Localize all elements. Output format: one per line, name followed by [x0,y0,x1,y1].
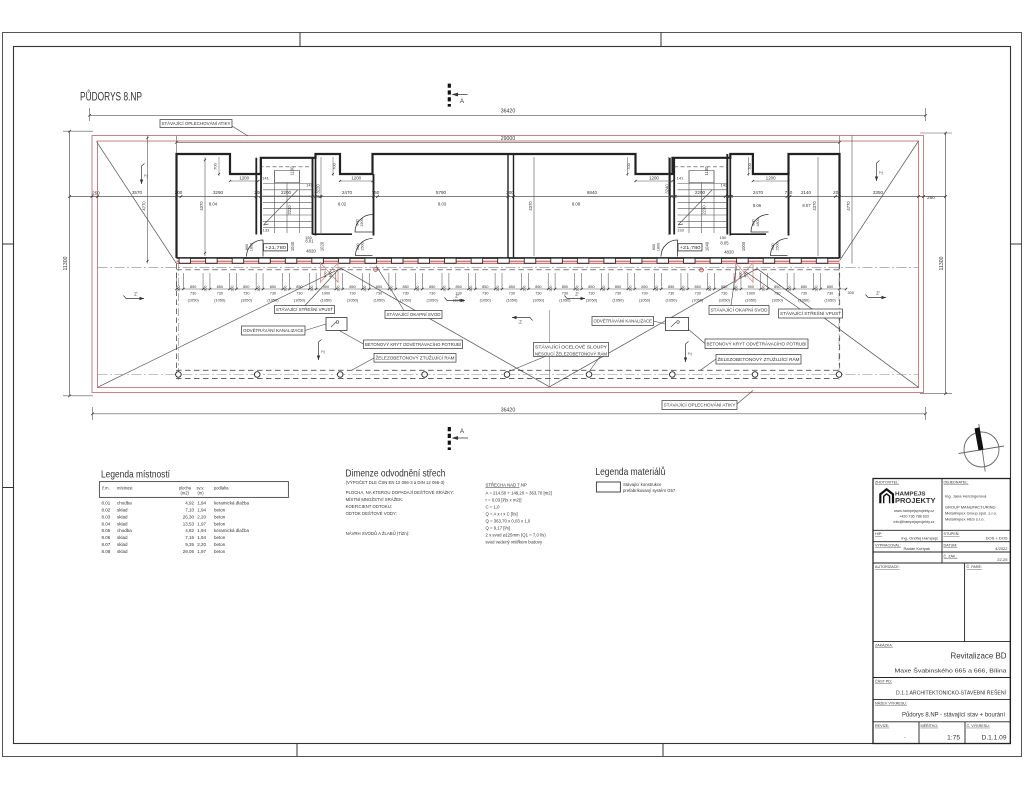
svg-text:Radan Kurtyak: Radan Kurtyak [904,546,930,551]
svg-text:850: 850 [349,285,355,289]
svg-text:700: 700 [747,162,752,169]
svg-text:4820: 4820 [724,250,734,255]
svg-text:300: 300 [257,286,261,292]
svg-text:1040: 1040 [290,241,295,251]
svg-text:8.06: 8.06 [753,203,762,208]
svg-text:8.05: 8.05 [102,528,111,533]
svg-text:(1050): (1050) [427,297,439,302]
svg-text:beton: beton [214,549,226,554]
svg-text:11300: 11300 [939,256,945,270]
svg-text:ŽELEZOBETONOVÝ ZTUŽUJÍCÍ RÁM: ŽELEZOBETONOVÝ ZTUŽUJÍCÍ RÁM [376,356,456,361]
svg-text:7,16: 7,16 [185,535,194,540]
svg-text:(1050): (1050) [373,297,385,302]
svg-text:300: 300 [602,286,606,292]
svg-text:Q = 363,70 x 0,03 x 1,0: Q = 363,70 x 0,03 x 1,0 [486,518,531,523]
svg-text:(1050): (1050) [320,297,332,302]
svg-text:300: 300 [788,286,792,292]
svg-text:www.hampejsprojekty.cz: www.hampejsprojekty.cz [894,509,934,513]
svg-text:730: 730 [668,291,674,295]
svg-text:GROUP MANUFACTURING: GROUP MANUFACTURING [945,505,996,510]
svg-text:141: 141 [677,176,684,181]
svg-text:místnost: místnost [117,486,133,491]
svg-text:(1050): (1050) [559,297,571,302]
svg-text:D.1.1 ARCHITEKTONICKO-STAVEBNÍ: D.1.1 ARCHITEKTONICKO-STAVEBNÍ ŘEŠENÍ [896,689,1006,697]
svg-text:Q = 9,17 [l/s]: Q = 9,17 [l/s] [486,525,510,530]
svg-text:svod vedený vnitřkem budovy: svod vedený vnitřkem budovy [486,539,543,544]
svg-text:1100: 1100 [290,166,295,176]
svg-text:200: 200 [175,190,183,195]
svg-text:700: 700 [332,162,337,169]
svg-text:1200: 1200 [766,175,776,180]
svg-text:730: 730 [429,291,435,295]
svg-text:6840: 6840 [587,190,598,195]
svg-text:3240: 3240 [665,184,670,194]
svg-text:ODTOK DEŠŤOVÉ VODY:: ODTOK DEŠŤOVÉ VODY: [346,511,397,516]
svg-text:Půdorys 8.NP - stávající stav: Půdorys 8.NP - stávající stav + bourání [902,711,1005,719]
svg-text:1900: 1900 [360,218,364,226]
svg-text:200: 200 [506,190,514,195]
svg-text:850: 850 [721,285,727,289]
svg-text:750: 750 [785,190,793,195]
svg-text:Č. PARÉ:: Č. PARÉ: [967,564,983,569]
svg-text:800: 800 [356,243,360,249]
svg-text:Q = A x r x C [l/s]: Q = A x r x C [l/s] [486,511,518,516]
svg-text:200: 200 [254,190,262,195]
svg-text:2140: 2140 [801,190,812,195]
svg-text:1,97: 1,97 [197,549,206,554]
svg-text:730: 730 [402,291,408,295]
svg-text:beton: beton [214,514,226,519]
svg-text:(1050): (1050) [267,297,279,302]
svg-text:300: 300 [549,286,553,292]
svg-text:STŘECHA NAD 7.NP: STŘECHA NAD 7.NP [486,482,527,487]
svg-text:(m): (m) [198,490,205,495]
svg-text:750: 750 [372,190,380,195]
svg-text:Z': Z' [134,292,138,297]
svg-text:730: 730 [270,291,276,295]
svg-text:Z': Z' [455,294,459,299]
svg-text:PŮDORYS 8.NP: PŮDORYS 8.NP [80,89,142,104]
svg-text:(1050): (1050) [506,297,518,302]
svg-text:850: 850 [270,285,276,289]
svg-text:sklad: sklad [117,549,128,554]
svg-text:300: 300 [848,290,855,295]
svg-text:KOEFICIENT ODTOKU:: KOEFICIENT ODTOKU: [346,504,392,509]
svg-text:BETONOVÝ KRYT ODVĚTRÁVACÍHO PO: BETONOVÝ KRYT ODVĚTRÁVACÍHO POTRUBÍ [365,342,462,347]
svg-text:Metalimpex Group spol. s.r.o.: Metalimpex Group spol. s.r.o. [945,511,997,516]
svg-text:1500: 1500 [361,242,365,250]
svg-text:2470: 2470 [342,190,353,195]
svg-text:1900: 1900 [747,291,755,295]
svg-text:Dimenze odvodnění střech: Dimenze odvodnění střech [345,468,445,480]
svg-text:STÁVAJÍCÍ OPLECHOVÁNÍ ATIKY: STÁVAJÍCÍ OPLECHOVÁNÍ ATIKY [664,403,736,408]
svg-text:8.08: 8.08 [572,202,581,207]
svg-text:8.03: 8.03 [102,514,111,519]
svg-text:4/2022: 4/2022 [995,546,1008,551]
svg-text:Z': Z' [879,171,884,175]
svg-text:PROJEKTY: PROJEKTY [895,496,936,505]
svg-text:300: 300 [469,286,473,292]
svg-text:(1050): (1050) [294,297,306,302]
svg-text:850: 850 [615,285,621,289]
svg-text:850: 850 [695,285,701,289]
svg-text:Ing. Ondřej Hampejs: Ing. Ondřej Hampejs [901,536,938,541]
svg-text:142: 142 [721,183,728,188]
svg-text:730: 730 [243,291,249,295]
svg-text:850: 850 [376,285,382,289]
svg-text:(1050): (1050) [639,297,651,302]
svg-text:1200: 1200 [239,175,249,180]
svg-text:300: 300 [230,286,234,292]
svg-text:Maxe Švabinského 665 a 666, Bí: Maxe Švabinského 665 a 666, Bílina [895,668,1008,675]
svg-text:133: 133 [263,228,270,233]
svg-text:730: 730 [801,291,807,295]
svg-text:300: 300 [177,286,181,292]
svg-text:730: 730 [827,291,833,295]
svg-text:2230: 2230 [287,205,292,215]
svg-text:8.05: 8.05 [720,241,729,246]
svg-text:700: 700 [213,162,218,169]
svg-text:STÁVAJÍCÍ OKAPNÍ SVOD: STÁVAJÍCÍ OKAPNÍ SVOD [387,312,441,317]
svg-text:NESOUCÍ ŽELEZOBETONOVÝ RÁM: NESOUCÍ ŽELEZOBETONOVÝ RÁM [535,351,608,356]
svg-text:730: 730 [482,291,488,295]
svg-text:1040: 1040 [705,241,710,251]
svg-text:2200: 2200 [695,190,706,195]
svg-text:8.07: 8.07 [802,203,811,208]
svg-text:850: 850 [641,285,647,289]
svg-text:26,30: 26,30 [183,514,195,519]
svg-text:Z': Z' [518,320,522,325]
svg-text:STÁVAJÍCÍ OKAPNÍ SVOD: STÁVAJÍCÍ OKAPNÍ SVOD [711,308,768,313]
svg-text:NÁZEV VÝKRESU:: NÁZEV VÝKRESU: [875,701,907,705]
svg-text:sklad: sklad [117,542,128,547]
svg-text:1800: 1800 [756,218,760,226]
svg-text:(1050): (1050) [745,297,757,302]
svg-text:STÁVAJÍCÍ OCELOVÉ SLOUPY: STÁVAJÍCÍ OCELOVÉ SLOUPY [535,345,607,350]
svg-text:NÁVRH SVODŮ A ŽLABŮ (TiZn):: NÁVRH SVODŮ A ŽLABŮ (TiZn): [346,531,410,536]
svg-text:3570: 3570 [132,190,143,195]
svg-text:8.04: 8.04 [102,521,111,526]
svg-text:730: 730 [588,291,594,295]
svg-text:A: A [460,99,464,105]
svg-text:300: 300 [310,286,314,292]
svg-text:chodba: chodba [117,528,132,533]
svg-text:29000: 29000 [501,136,516,142]
svg-text:STÁVAJÍCÍ OPLECHOVÁNÍ ATIKY: STÁVAJÍCÍ OPLECHOVÁNÍ ATIKY [162,121,231,126]
svg-text:AUTORIZACE:: AUTORIZACE: [875,565,900,569]
svg-text:(1050): (1050) [798,297,810,302]
svg-text:sklad: sklad [117,535,128,540]
svg-text:info@hampejsprojekty.cz: info@hampejsprojekty.cz [894,520,935,524]
svg-text:850: 850 [827,285,833,289]
svg-text:1800: 1800 [250,243,254,251]
svg-text:Č. VÝKRESU:: Č. VÝKRESU: [967,723,990,728]
svg-text:1:75: 1:75 [947,735,960,742]
svg-text:2200: 2200 [281,190,292,195]
svg-text:900: 900 [748,285,754,289]
svg-text:A = 214,50 + 149,20 = 363,70 [: A = 214,50 + 149,20 = 363,70 [m2] [486,490,552,495]
svg-text:sklad: sklad [117,514,128,519]
svg-text:8.01: 8.01 [102,501,111,506]
svg-text:ČÁST PD:: ČÁST PD: [875,678,892,683]
svg-text:2230: 2230 [702,205,707,215]
svg-text:8.02: 8.02 [102,508,111,513]
svg-text:4770: 4770 [846,201,851,211]
svg-text:8.06: 8.06 [102,535,111,540]
svg-text:8.02: 8.02 [338,202,347,207]
svg-text:HIP:: HIP: [875,532,882,536]
svg-text:+21,780: +21,780 [680,245,702,250]
svg-text:730: 730 [190,291,196,295]
svg-text:beton: beton [214,508,226,513]
svg-text:1020: 1020 [320,241,325,251]
svg-text:850: 850 [243,285,249,289]
svg-text:4,92: 4,92 [185,501,194,506]
svg-text:C = 1,0: C = 1,0 [486,504,501,509]
svg-text:850: 850 [562,285,568,289]
svg-text:13,53: 13,53 [183,521,195,526]
svg-text:Ing. Jana Hercingerová: Ing. Jana Hercingerová [945,494,987,499]
svg-text:141: 141 [262,176,269,181]
svg-text:150: 150 [669,194,677,199]
svg-text:8.08: 8.08 [102,549,111,554]
svg-text:730: 730 [349,291,355,295]
svg-text:3290: 3290 [213,190,224,195]
svg-text:ODVĚTRÁVÁNÍ KANALIZACE: ODVĚTRÁVÁNÍ KANALIZACE [594,319,653,324]
svg-text:2,20: 2,20 [197,514,206,519]
svg-text:300: 300 [336,286,340,292]
svg-text:sklad: sklad [117,508,128,513]
svg-text:3220: 3220 [316,184,321,194]
svg-text:800: 800 [652,244,656,250]
svg-text:850: 850 [801,285,807,289]
svg-text:(1050): (1050) [480,297,492,302]
svg-text:Č. ZAK.:: Č. ZAK.: [944,553,958,558]
svg-text:DOS + DOS: DOS + DOS [986,536,1008,541]
svg-text:4370: 4370 [812,201,817,211]
svg-text:Metalimpex HES s.r.o.: Metalimpex HES s.r.o. [945,517,985,522]
svg-text:BETONOVÝ KRYT ODVĚTRÁVACÍHO PO: BETONOVÝ KRYT ODVĚTRÁVACÍHO POTRUBÍ [707,341,808,346]
svg-text:(m2): (m2) [181,490,190,495]
svg-text:150: 150 [726,194,734,199]
svg-text:PLOCHA, NA KTEROU DOPADAJÍ DEŠ: PLOCHA, NA KTEROU DOPADAJÍ DEŠŤOVÉ SRÁŽK… [346,490,454,495]
svg-text:850: 850 [668,285,674,289]
svg-text:150: 150 [720,235,727,240]
svg-text:850: 850 [217,285,223,289]
svg-text:36420: 36420 [501,407,516,413]
svg-text:D.1.1.09: D.1.1.09 [982,735,1007,742]
svg-text:sklad: sklad [117,521,128,526]
svg-text:REVIZE:: REVIZE: [875,724,889,728]
svg-text:chodba: chodba [117,501,132,506]
svg-text:ZAKÁZKA:: ZAKÁZKA: [875,644,893,648]
svg-text:1200: 1200 [351,175,361,180]
svg-text:730: 730 [641,291,647,295]
svg-text:9,35: 9,35 [185,542,194,547]
svg-text:1900: 1900 [322,291,330,295]
svg-text:1,94: 1,94 [197,535,206,540]
svg-text:STUPEŇ:: STUPEŇ: [944,531,960,536]
svg-text:8.07: 8.07 [102,542,111,547]
svg-text:850: 850 [535,285,541,289]
svg-text:r = 0,03 [l/(s x m2)]: r = 0,03 [l/(s x m2)] [486,497,522,502]
svg-text:(1050): (1050) [400,297,412,302]
svg-text:Z': Z' [876,291,880,296]
svg-text:(1050): (1050) [188,297,200,302]
svg-text:850: 850 [456,285,462,289]
svg-text:300: 300 [682,286,686,292]
svg-text:ODVĚTRÁVÁNÍ KANALIZACE: ODVĚTRÁVÁNÍ KANALIZACE [243,328,304,333]
svg-text:8.04: 8.04 [209,202,218,207]
svg-text:300: 300 [761,286,765,292]
svg-text:850: 850 [429,285,435,289]
svg-text:(1050): (1050) [347,297,359,302]
svg-text:2,20: 2,20 [197,542,206,547]
svg-text:730: 730 [509,291,515,295]
svg-text:MĚŘÍTKO:: MĚŘÍTKO: [921,723,939,728]
svg-text:2 x svod ⌀125mm (Q1 = 7,0 l/s): 2 x svod ⌀125mm (Q1 = 7,0 l/s) [486,532,547,537]
svg-text:850: 850 [296,285,302,289]
svg-text:142: 142 [306,183,313,188]
svg-text:7,10: 7,10 [185,508,194,513]
svg-text:keramická dlažba: keramická dlažba [214,501,250,506]
svg-text:300: 300 [735,286,739,292]
svg-text:1100: 1100 [704,166,709,176]
svg-text:podlaha: podlaha [214,486,229,491]
svg-text:ŽELEZOBETONOVÝ ZTUŽUJÍCÍ RÁM: ŽELEZOBETONOVÝ ZTUŽUJÍCÍ RÁM [718,357,801,362]
svg-text:4,82: 4,82 [185,528,194,533]
svg-text:200: 200 [833,190,841,195]
svg-text:5790: 5790 [436,190,447,195]
svg-text:A: A [460,429,464,435]
svg-text:+21,780: +21,780 [265,245,287,250]
svg-text:4370: 4370 [199,201,204,211]
svg-text:700: 700 [626,162,631,169]
svg-text:850: 850 [588,285,594,289]
svg-text:(1050): (1050) [214,297,226,302]
svg-text:+420 736 788 833: +420 736 788 833 [899,515,929,519]
svg-text:(1050): (1050) [666,297,678,302]
svg-text:900: 900 [323,285,329,289]
svg-text:beton: beton [214,542,226,547]
svg-text:400: 400 [323,272,327,278]
svg-text:Legenda materiálů: Legenda materiálů [595,466,665,478]
svg-text:800: 800 [752,219,756,225]
svg-text:(1050): (1050) [692,297,704,302]
svg-text:300: 300 [416,286,420,292]
svg-text:850: 850 [482,285,488,289]
svg-text:(1050): (1050) [586,297,598,302]
svg-text:730: 730 [376,291,382,295]
svg-text:2470: 2470 [753,190,764,195]
svg-text:č.m.: č.m. [102,486,110,491]
svg-text:1500: 1500 [776,242,780,250]
svg-text:3350: 3350 [873,190,884,195]
svg-text:800: 800 [245,244,249,250]
svg-text:Legenda místností: Legenda místností [101,469,170,481]
svg-text:(1050): (1050) [241,297,253,302]
svg-text:1,94: 1,94 [197,501,206,506]
svg-text:1,94: 1,94 [197,528,206,533]
svg-text:OBJEDNATEL:: OBJEDNATEL: [944,481,969,485]
svg-text:4770: 4770 [142,201,147,211]
svg-text:Z': Z' [575,292,579,297]
svg-text:300: 300 [708,286,712,292]
svg-text:(1050): (1050) [719,297,731,302]
svg-text:4370: 4370 [528,201,533,211]
svg-text:(1050): (1050) [824,297,836,302]
svg-text:beton: beton [214,521,226,526]
svg-text:(1050): (1050) [533,297,545,302]
svg-text:4820: 4820 [306,249,316,254]
svg-text:730: 730 [721,291,727,295]
svg-text:keramická dlažba: keramická dlažba [214,528,250,533]
svg-text:250: 250 [927,195,935,200]
svg-text:DATUM:: DATUM: [944,543,958,547]
svg-text:VYPRACOVAL:: VYPRACOVAL: [875,543,901,547]
svg-text:300: 300 [443,286,447,292]
svg-text:11300: 11300 [63,256,69,270]
svg-text:1800: 1800 [657,243,661,251]
svg-text:prefabrikovaný systém G57: prefabrikovaný systém G57 [623,488,676,493]
svg-text:300: 300 [496,286,500,292]
svg-text:250: 250 [92,191,100,196]
svg-text:1200: 1200 [649,175,659,180]
svg-text:29,05: 29,05 [183,549,195,554]
svg-text:STÁVAJÍCÍ STŘEŠNÍ VPUSŤ: STÁVAJÍCÍ STŘEŠNÍ VPUSŤ [780,311,841,316]
svg-text:(1050): (1050) [772,297,784,302]
svg-text:850: 850 [774,285,780,289]
svg-text:(1050): (1050) [612,297,624,302]
svg-text:300: 300 [655,286,659,292]
svg-text:133: 133 [677,228,684,233]
svg-text:beton: beton [214,535,226,540]
svg-text:22-25: 22-25 [997,557,1008,562]
svg-text:730: 730 [217,291,223,295]
svg-text:850: 850 [190,285,196,289]
svg-text:Revitalizace BD: Revitalizace BD [951,651,1007,661]
svg-text:300: 300 [283,286,287,292]
svg-text:800: 800 [771,243,775,249]
svg-text:8.03: 8.03 [438,202,447,207]
svg-text:Z': Z' [688,352,693,356]
svg-text:730: 730 [535,291,541,295]
svg-text:300: 300 [363,286,367,292]
svg-text:850: 850 [402,285,408,289]
svg-text:1,94: 1,94 [197,508,206,513]
svg-text:1000: 1000 [741,241,746,251]
svg-text:(VÝPOČET DLE ČSN EN 12 056-3 a: (VÝPOČET DLE ČSN EN 12 056-3 a DIN 12 05… [346,480,445,485]
svg-text:300: 300 [629,286,633,292]
svg-text:Stávající konstrukce: Stávající konstrukce [623,482,662,487]
svg-text:Z': Z' [321,350,326,354]
svg-text:Z': Z' [144,174,149,178]
svg-text:300: 300 [204,286,208,292]
svg-text:ZHOTOVITEL:: ZHOTOVITEL: [875,481,899,485]
svg-text:730: 730 [695,291,701,295]
svg-text:850: 850 [509,285,515,289]
svg-text:730: 730 [615,291,621,295]
svg-text:8.01: 8.01 [305,239,314,244]
svg-text:730: 730 [562,291,568,295]
svg-text:MÍSTNÍ MNOŽSTVÍ SRÁŽEK:: MÍSTNÍ MNOŽSTVÍ SRÁŽEK: [346,497,404,502]
svg-text:1,97: 1,97 [197,521,206,526]
svg-text:400: 400 [738,272,742,278]
svg-text:800: 800 [356,219,360,225]
svg-text:300: 300 [522,286,526,292]
svg-text:730: 730 [296,291,302,295]
svg-text:STÁVAJÍCÍ STŘEŠNÍ VPUSŤ: STÁVAJÍCÍ STŘEŠNÍ VPUSŤ [276,307,333,312]
